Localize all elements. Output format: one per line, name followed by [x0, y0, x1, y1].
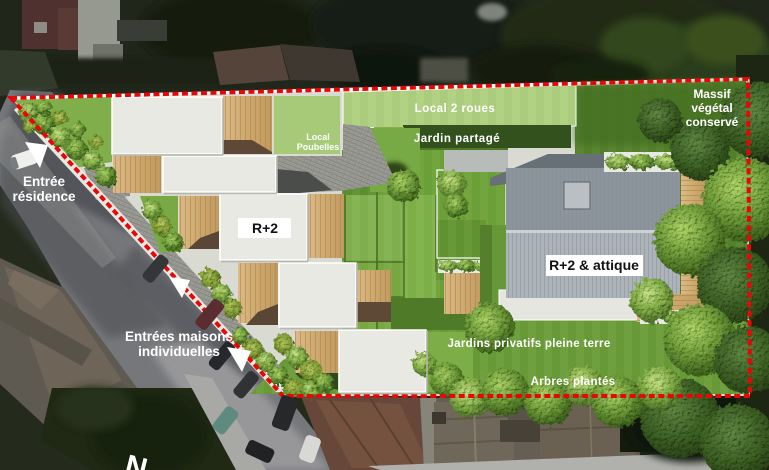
- svg-text:R+2: R+2: [252, 220, 278, 236]
- svg-text:Entrée: Entrée: [23, 174, 66, 189]
- svg-text:R+2 & attique: R+2 & attique: [549, 257, 639, 273]
- svg-text:Jardins privatifs pleine terre: Jardins privatifs pleine terre: [447, 338, 610, 350]
- svg-text:Poubelles: Poubelles: [297, 142, 340, 152]
- svg-text:Entrées maisons: Entrées maisons: [125, 329, 233, 344]
- svg-text:Local: Local: [306, 132, 330, 142]
- svg-text:Jardin partagé: Jardin partagé: [414, 133, 500, 145]
- svg-text:Massif: Massif: [693, 87, 731, 101]
- svg-text:résidence: résidence: [12, 189, 76, 204]
- svg-text:végétal: végétal: [691, 101, 732, 115]
- svg-text:Arbres plantés: Arbres plantés: [531, 376, 616, 388]
- svg-text:conservé: conservé: [686, 115, 739, 129]
- svg-text:individuelles: individuelles: [138, 344, 220, 359]
- svg-text:Local 2 roues: Local 2 roues: [415, 103, 496, 115]
